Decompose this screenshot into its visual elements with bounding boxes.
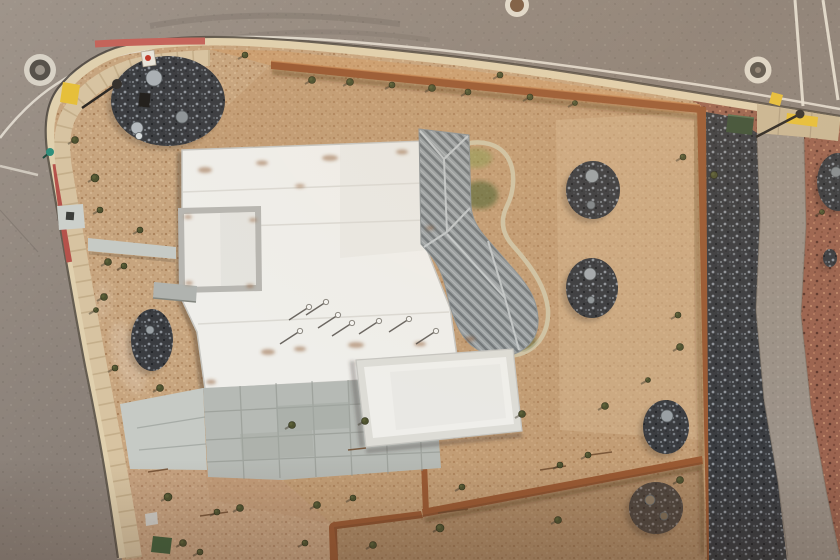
aerial-photo-canvas	[0, 0, 840, 560]
aerial-photo	[0, 0, 840, 560]
bottom-vignette	[0, 0, 840, 560]
